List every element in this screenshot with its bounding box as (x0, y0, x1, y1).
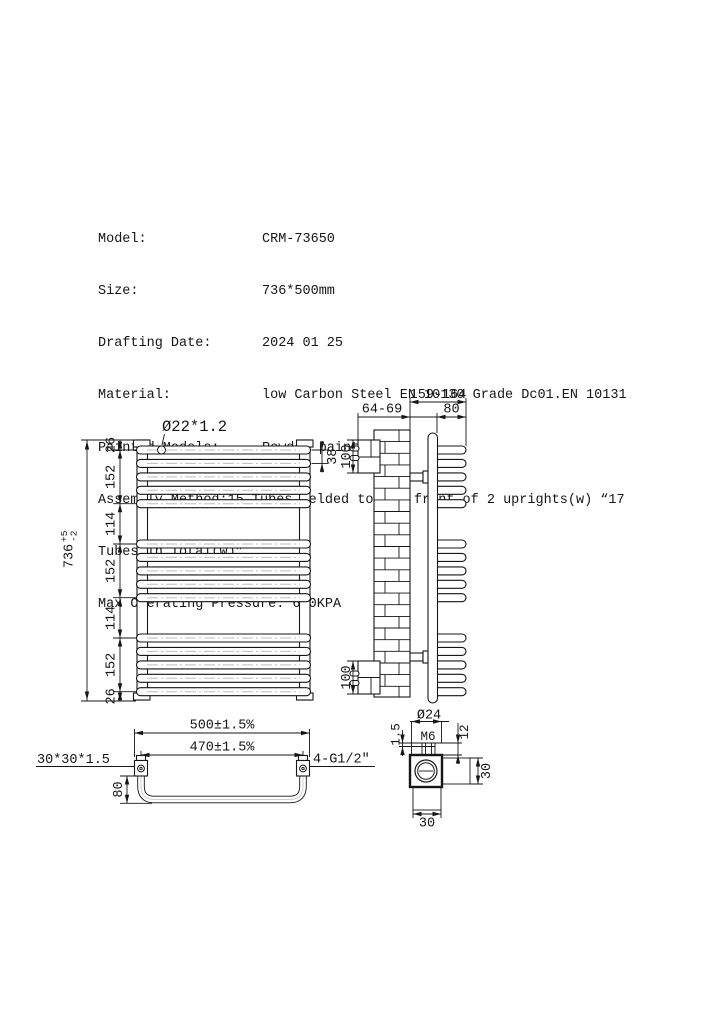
front-tubes (137, 446, 311, 696)
dim-overall-tol-minus: -2 (69, 530, 80, 542)
dim-chain-6: 26 (105, 688, 120, 704)
dim-overall-width: 500±1.5% (190, 719, 256, 734)
dim-boss-height: 12 (458, 724, 472, 739)
dim-detail-width: 30 (419, 817, 435, 832)
dim-chain-4: 114 (105, 606, 120, 630)
dim-tube-spec: Ø22*1.2 (162, 418, 227, 436)
dim-tube-depth: 80 (443, 403, 459, 418)
technical-drawing: Ø22*1.2 736 +5 -2 26 152 114 152 114 152… (0, 0, 720, 1018)
dim-overall-height-value: 736 (63, 544, 78, 568)
side-view: 159-164 64-69 80 100 100 (340, 388, 466, 703)
dim-chain-1: 152 (105, 465, 120, 489)
dim-chain-0: 26 (105, 437, 120, 453)
detail-view: Ø24 M6 1.5 12 30 30 (390, 709, 496, 832)
label-thread: M6 (420, 730, 435, 744)
dim-overall-height: 736 +5 -2 (59, 530, 80, 568)
dim-chain-5: 152 (105, 653, 120, 677)
label-upright-tube: 30*30*1.5 (37, 753, 110, 768)
dim-bottom-depth: 80 (112, 781, 127, 797)
dim-wall-clearance: 64-69 (362, 403, 403, 418)
dim-chain-3: 152 (105, 559, 120, 583)
drawing-sheet: Model:CRM-73650 Size:736*500mm Drafting … (0, 0, 720, 1018)
label-connections: 4-G1/2″ (313, 753, 370, 768)
bottom-view: 500±1.5% 470±1.5% 30*30*1.5 4-G1/2″ 80 (36, 719, 375, 804)
dim-tube-pitch: 38 (326, 449, 341, 465)
side-upright (428, 433, 438, 703)
dim-center-distance: 470±1.5% (190, 741, 256, 756)
front-view: Ø22*1.2 736 +5 -2 26 152 114 152 114 152… (59, 418, 341, 705)
dim-detail-height: 30 (480, 763, 495, 779)
dim-chain-2: 114 (105, 512, 120, 536)
